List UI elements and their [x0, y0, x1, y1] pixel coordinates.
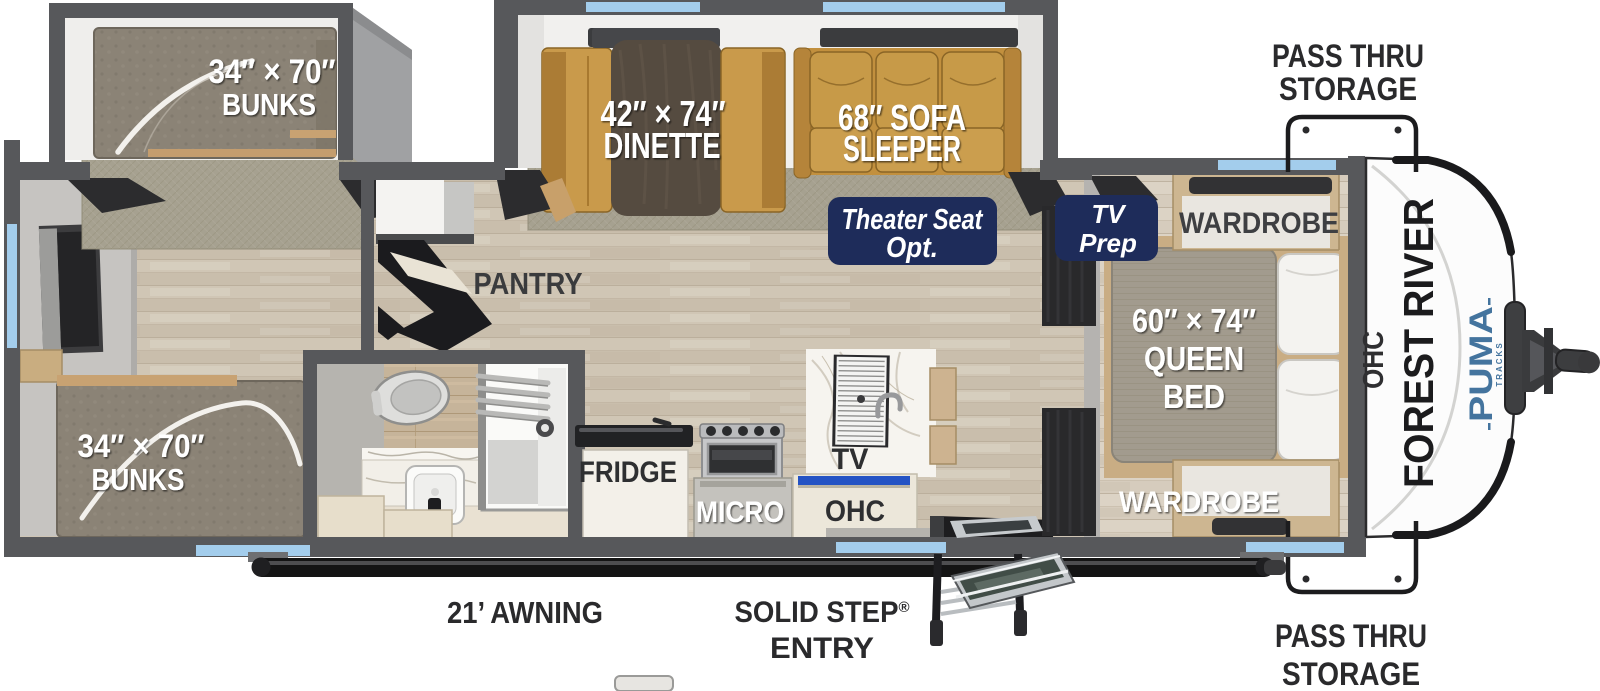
svg-text:MICRO: MICRO — [696, 496, 784, 529]
svg-text:OHC: OHC — [825, 495, 885, 528]
svg-text:BUNKS: BUNKS — [92, 462, 185, 497]
svg-text:TRACKS: TRACKS — [1495, 341, 1504, 386]
svg-text:60″ × 74″: 60″ × 74″ — [1132, 302, 1256, 339]
svg-text:STORAGE: STORAGE — [1282, 656, 1420, 691]
svg-text:WARDROBE: WARDROBE — [1119, 486, 1279, 519]
svg-text:BED: BED — [1163, 378, 1225, 415]
svg-text:WARDROBE: WARDROBE — [1179, 207, 1339, 240]
svg-text:BUNKS: BUNKS — [222, 87, 316, 122]
svg-text:SOLID STEP®: SOLID STEP® — [734, 596, 909, 629]
svg-text:SLEEPER: SLEEPER — [843, 128, 961, 169]
svg-text:TV: TV — [1091, 199, 1127, 229]
svg-text:PASS THRU: PASS THRU — [1272, 38, 1424, 74]
svg-text:DINETTE: DINETTE — [604, 125, 721, 166]
svg-text:STORAGE: STORAGE — [1279, 71, 1417, 107]
svg-text:34″ × 70″: 34″ × 70″ — [78, 428, 205, 464]
svg-text:21’ AWNING: 21’ AWNING — [447, 595, 603, 630]
svg-text:OHC: OHC — [1358, 331, 1390, 389]
svg-text:PUMA: PUMA — [1463, 306, 1499, 422]
svg-text:ENTRY: ENTRY — [770, 632, 874, 665]
svg-text:PASS THRU: PASS THRU — [1275, 618, 1427, 654]
svg-text:PANTRY: PANTRY — [474, 266, 583, 301]
svg-text:FRIDGE: FRIDGE — [579, 456, 677, 489]
svg-text:34″ × 70″: 34″ × 70″ — [209, 53, 336, 91]
svg-text:FOREST RIVER: FOREST RIVER — [1395, 198, 1442, 488]
svg-text:QUEEN: QUEEN — [1144, 340, 1244, 377]
svg-text:Prep: Prep — [1079, 228, 1137, 258]
svg-text:Opt.: Opt. — [886, 232, 938, 264]
svg-text:TV: TV — [832, 443, 869, 476]
